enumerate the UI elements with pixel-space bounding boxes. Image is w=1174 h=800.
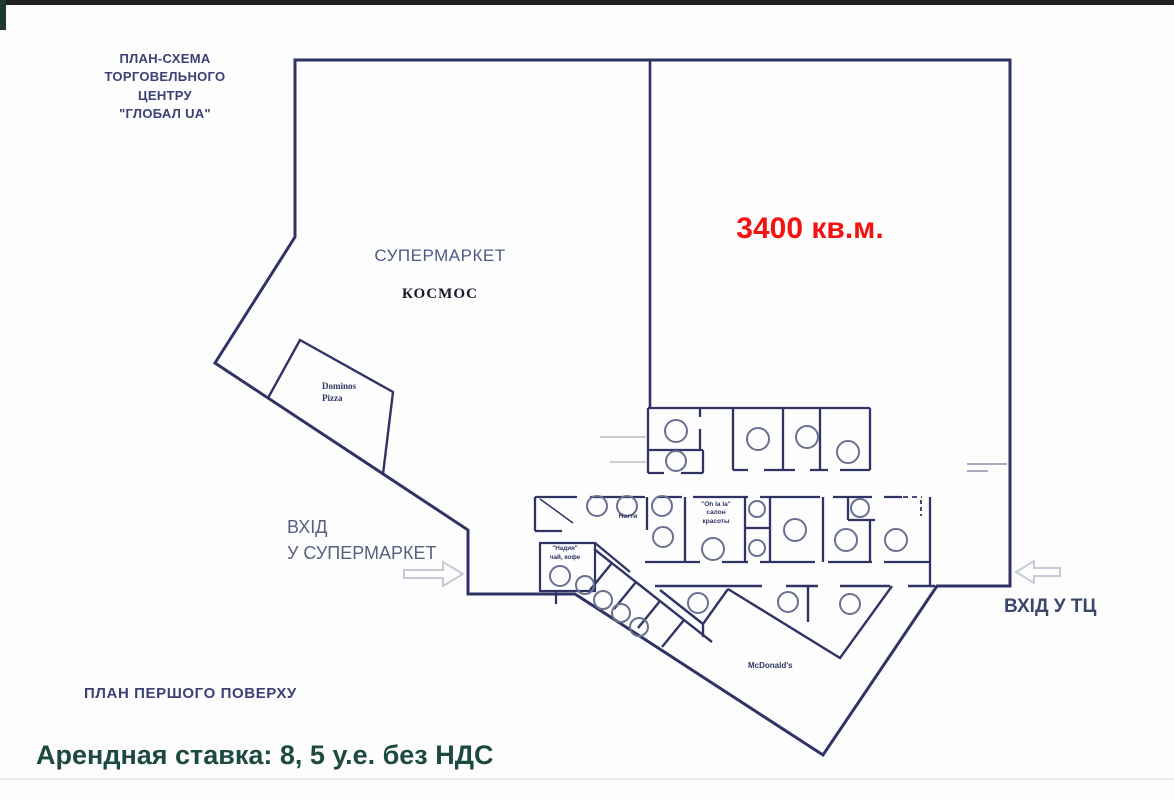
supermarket-block: СУПЕРМАРКЕТ КОСМОС: [338, 228, 542, 321]
floor-plan-page: ПЛАН-СХЕМА ТОРГОВЕЛЬНОГО ЦЕНТРУ "ГЛОБАЛ …: [0, 0, 1174, 800]
rent-rate-text: Арендная ставка: 8, 5 у.е. без НДС: [36, 740, 493, 771]
room-circles: [550, 420, 907, 636]
plan-title: ПЛАН-СХЕМА ТОРГОВЕЛЬНОГО ЦЕНТРУ "ГЛОБАЛ …: [58, 50, 272, 124]
dominos-unit-walls: [268, 340, 393, 474]
tenant-ohlala-label: "Oh la la" салон красоты: [690, 501, 742, 526]
supermarket-entrance-label: ВХІД У СУПЕРМАРКЕТ: [287, 514, 437, 566]
dashed-wall-segments: [903, 497, 922, 516]
vacant-area-size: 3400 кв.м.: [698, 212, 922, 246]
tenant-nails-label: Ногти: [609, 513, 647, 520]
right-wall-door-ticks: [967, 464, 1007, 471]
foodcourt-walls: [655, 586, 935, 658]
tenant-nadia-label: "Надия" чай, кофе: [540, 545, 590, 562]
supermarket-name: КОСМОС: [338, 286, 542, 303]
diagonal-stall-walls: [590, 549, 712, 647]
entry-leader-lines: [600, 437, 646, 462]
supermarket-label: СУПЕРМАРКЕТ: [338, 246, 542, 266]
tenant-dominos-label: Dominos Pizza: [322, 380, 392, 404]
mall-entrance-arrow-icon: [1016, 561, 1060, 583]
mall-entrance-label: ВХІД У ТЦ: [1004, 596, 1096, 618]
floor-plan-caption: ПЛАН ПЕРШОГО ПОВЕРХУ: [84, 685, 297, 702]
outer-walls: [215, 60, 1010, 755]
tenant-mcdonalds-label: McDonald's: [748, 661, 793, 670]
door-swing-line: [540, 499, 573, 523]
